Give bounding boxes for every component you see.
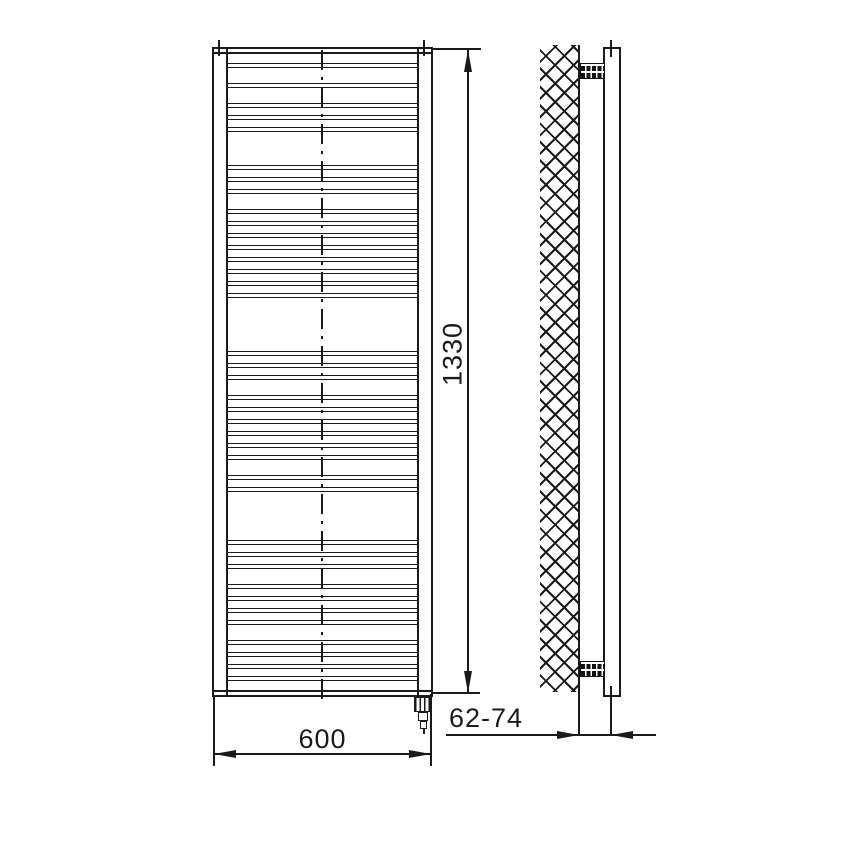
- arrowhead-toward-tube-icon: [611, 731, 633, 739]
- wall-distance-value: 62-74: [449, 703, 523, 734]
- radiator-dimension-drawing: 600 1330 62-74: [0, 0, 868, 868]
- arrowhead-toward-wall-icon: [557, 731, 579, 739]
- dimension-wall-distance: 62-74: [0, 0, 868, 868]
